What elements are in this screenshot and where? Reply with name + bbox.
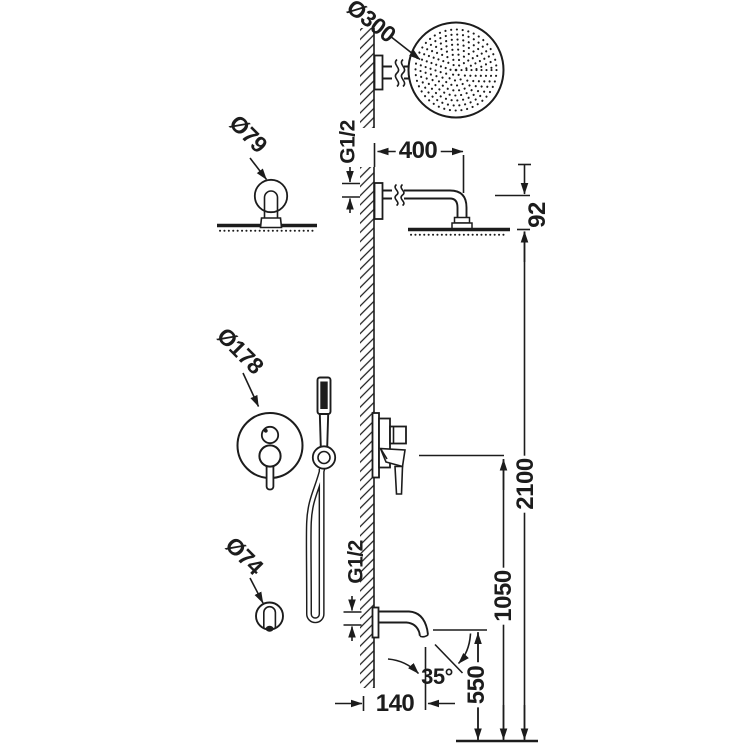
hand-shower (309, 378, 336, 621)
mixer-height-label: 1050 (491, 567, 517, 624)
thread-top-label: G1/2 (338, 120, 359, 164)
mixer-side-view (373, 413, 407, 494)
overall-height-label: 2100 (513, 455, 539, 512)
dim-thread-top (342, 167, 360, 213)
hand-shower-spray-face (320, 382, 327, 410)
spout-angle-label: 35° (421, 666, 453, 688)
shower-installation-diagram: Ø300 Ø79 G1/2 400 92 Ø178 Ø74 G1/2 140 3… (0, 0, 750, 750)
spout-reach-label: 140 (376, 692, 415, 716)
wall-section (360, 28, 374, 688)
technical-drawing (0, 0, 750, 750)
mixer-front-view (238, 413, 303, 490)
leader-arrows (243, 36, 420, 603)
spout-side-view (373, 608, 429, 638)
shower-arm-side-view (375, 183, 511, 235)
dim-thread-bottom (344, 596, 362, 641)
hand-shower-hose (309, 468, 323, 620)
spout-front-view (256, 603, 283, 632)
thread-bottom-label: G1/2 (346, 540, 367, 584)
arm-flange-front-view (217, 180, 317, 231)
overhead-shower-front-view (375, 23, 504, 118)
spout-height-label: 550 (464, 663, 490, 708)
arm-length-label: 400 (396, 138, 441, 164)
head-drop-label: 92 (526, 202, 550, 228)
